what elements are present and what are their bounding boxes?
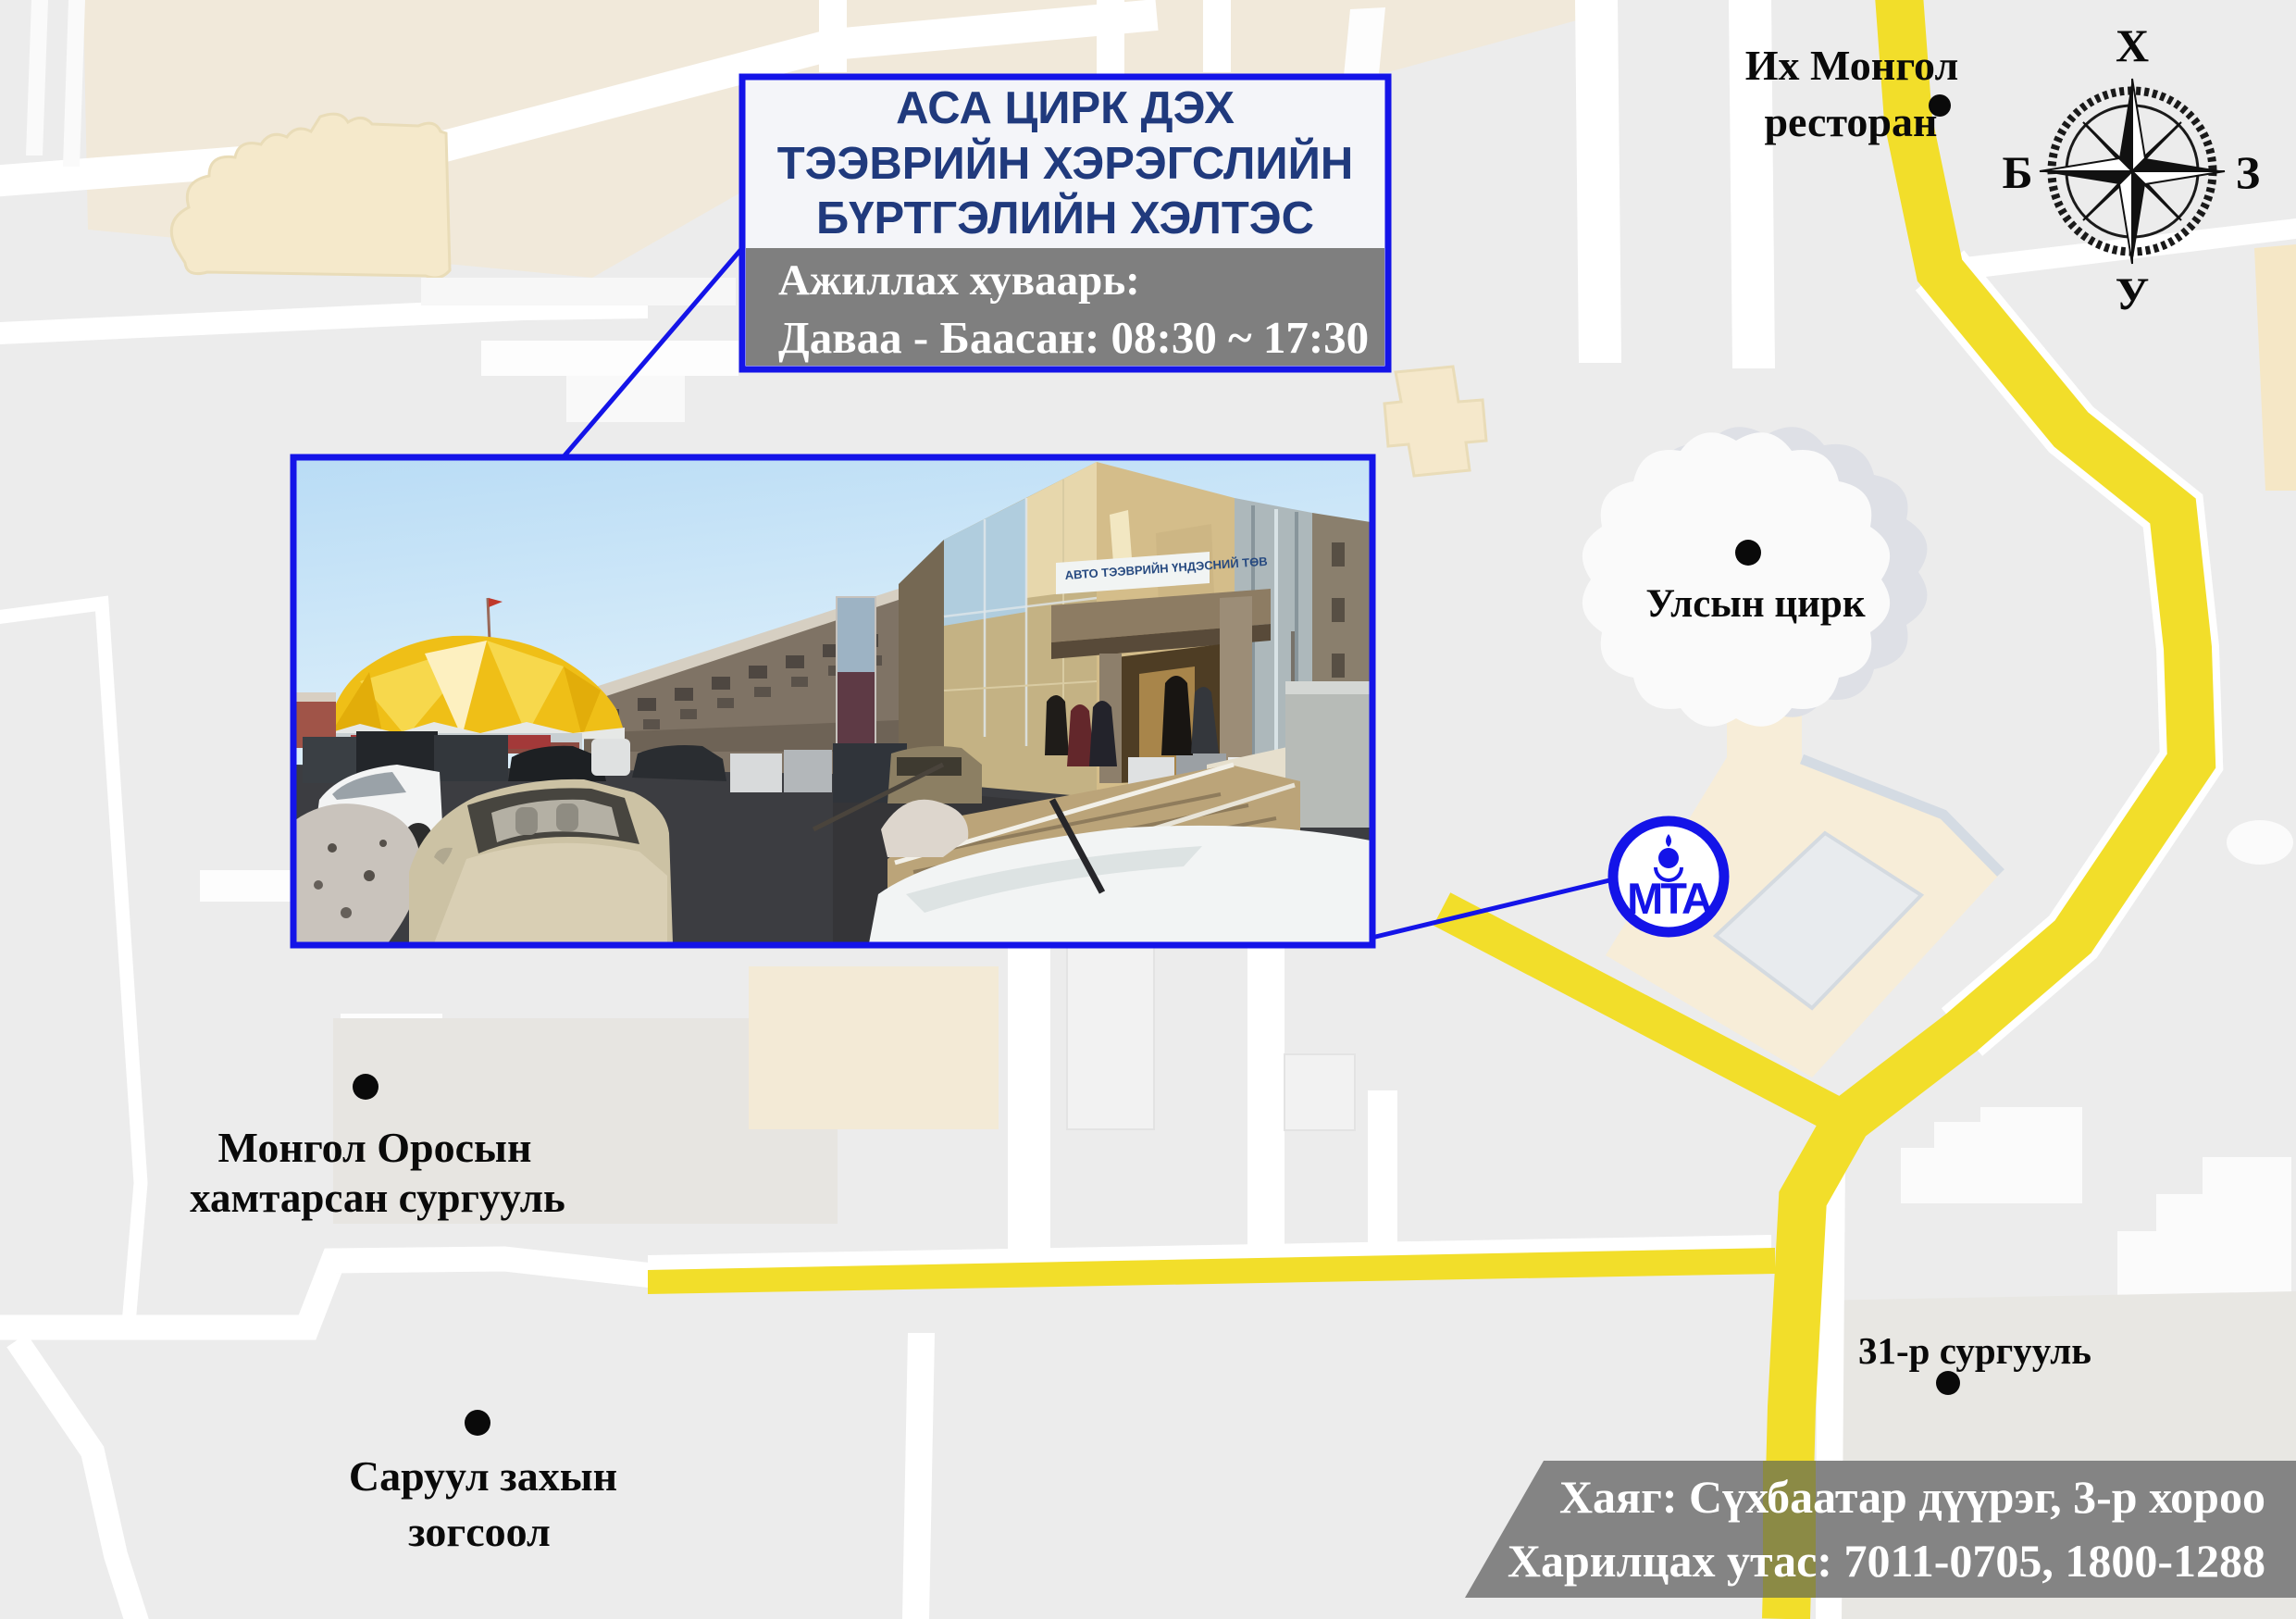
- svg-text:Саруул захын: Саруул захын: [349, 1452, 617, 1500]
- svg-text:Их Монгол: Их Монгол: [1745, 42, 1959, 89]
- svg-text:ТЭЭВРИЙН ХЭРЭГСЛИЙН: ТЭЭВРИЙН ХЭРЭГСЛИЙН: [777, 138, 1354, 189]
- svg-text:Б: Б: [2002, 146, 2032, 198]
- svg-text:У: У: [2116, 268, 2150, 319]
- svg-text:хамтарсан сургууль: хамтарсан сургууль: [190, 1175, 565, 1221]
- svg-text:Хаяг: Сүхбаатар дүүрэг, 3-р хо: Хаяг: Сүхбаатар дүүрэг, 3-р хороо: [1559, 1471, 2265, 1523]
- svg-text:31-р сургууль: 31-р сургууль: [1858, 1329, 2091, 1372]
- svg-text:Улсын цирк: Улсын цирк: [1645, 582, 1865, 626]
- svg-text:зогсоол: зогсоол: [408, 1508, 551, 1555]
- svg-text:МТА: МТА: [1627, 874, 1712, 923]
- svg-text:Х: Х: [2116, 19, 2149, 71]
- svg-text:АСА ЦИРК ДЭХ: АСА ЦИРК ДЭХ: [896, 83, 1235, 133]
- svg-text:Ажиллах хуваарь:: Ажиллах хуваарь:: [778, 256, 1140, 305]
- svg-text:Монгол Оросын: Монгол Оросын: [218, 1124, 532, 1171]
- svg-text:БҮРТГЭЛИЙН ХЭЛТЭС: БҮРТГЭЛИЙН ХЭЛТЭС: [816, 193, 1314, 243]
- svg-text:Даваа - Баасан: 08:30 ~ 17:30: Даваа - Баасан: 08:30 ~ 17:30: [778, 312, 1369, 363]
- svg-text:Харилцах утас: 7011-0705, 1800: Харилцах утас: 7011-0705, 1800-1288: [1508, 1535, 2265, 1587]
- svg-text:З: З: [2236, 146, 2260, 198]
- svg-text:ресторан: ресторан: [1764, 98, 1937, 145]
